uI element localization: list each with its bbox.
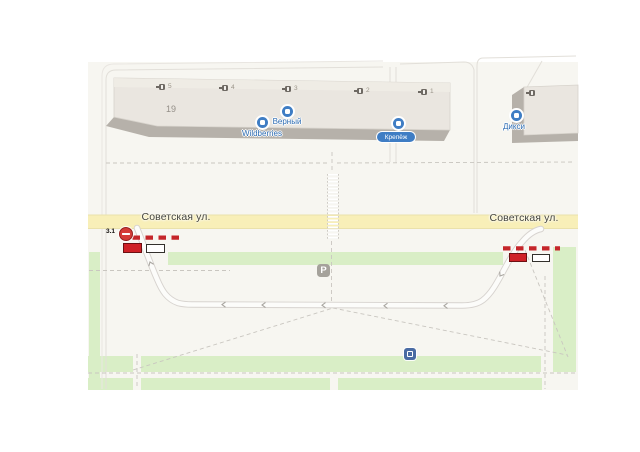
street-label-right: Советская ул. — [487, 212, 561, 224]
entrance-1-number: 1 — [430, 88, 434, 95]
entrance-5-icon[interactable] — [159, 84, 165, 90]
closure-banner-white-right — [532, 254, 550, 262]
closure-banner-white-left — [146, 244, 165, 253]
verny-shop-icon[interactable] — [282, 106, 293, 117]
entrance-3-icon[interactable] — [285, 86, 291, 92]
parking-icon[interactable]: P — [317, 264, 330, 277]
entrance-4-number: 4 — [231, 84, 235, 91]
closure-banner-red-left — [123, 243, 142, 253]
entrance-5-number: 5 — [168, 83, 172, 90]
entrance-right-building-icon[interactable] — [529, 90, 535, 96]
diksi-poi-label[interactable]: Дикси — [486, 122, 542, 131]
closure-sign-code: 3.1 — [106, 228, 115, 235]
diksi-shop-icon[interactable] — [511, 110, 522, 121]
entrance-2-number: 2 — [366, 87, 370, 94]
wildberries-shop-icon[interactable] — [257, 117, 268, 128]
building-number: 19 — [162, 104, 180, 114]
entrance-4-icon[interactable] — [222, 85, 228, 91]
entrance-2-icon[interactable] — [357, 88, 363, 94]
krepezh-shop-icon[interactable] — [393, 118, 404, 129]
entrance-1-icon[interactable] — [421, 89, 427, 95]
map-geometry — [0, 0, 640, 452]
closure-banner-red-right — [509, 253, 527, 262]
krepezh-poi-label-selected[interactable]: Крепёж — [377, 132, 415, 142]
entrance-3-number: 3 — [294, 85, 298, 92]
wildberries-poi-label[interactable]: Wildberries — [227, 129, 297, 138]
map-canvas[interactable]: Советская ул. Советская ул. 19 5 4 3 2 1… — [0, 0, 640, 452]
street-label-left: Советская ул. — [139, 211, 213, 223]
no-entry-sign-icon — [119, 227, 133, 241]
poi-square-icon[interactable] — [404, 348, 416, 360]
